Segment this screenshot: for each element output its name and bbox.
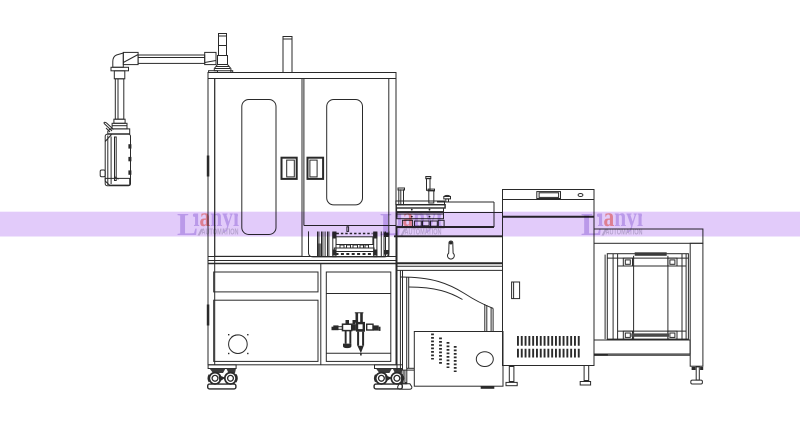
svg-text:AUTOMATION: AUTOMATION — [202, 228, 239, 237]
svg-text:AUTOMATION: AUTOMATION — [606, 228, 643, 237]
svg-text:AUTOMATION: AUTOMATION — [405, 228, 442, 237]
